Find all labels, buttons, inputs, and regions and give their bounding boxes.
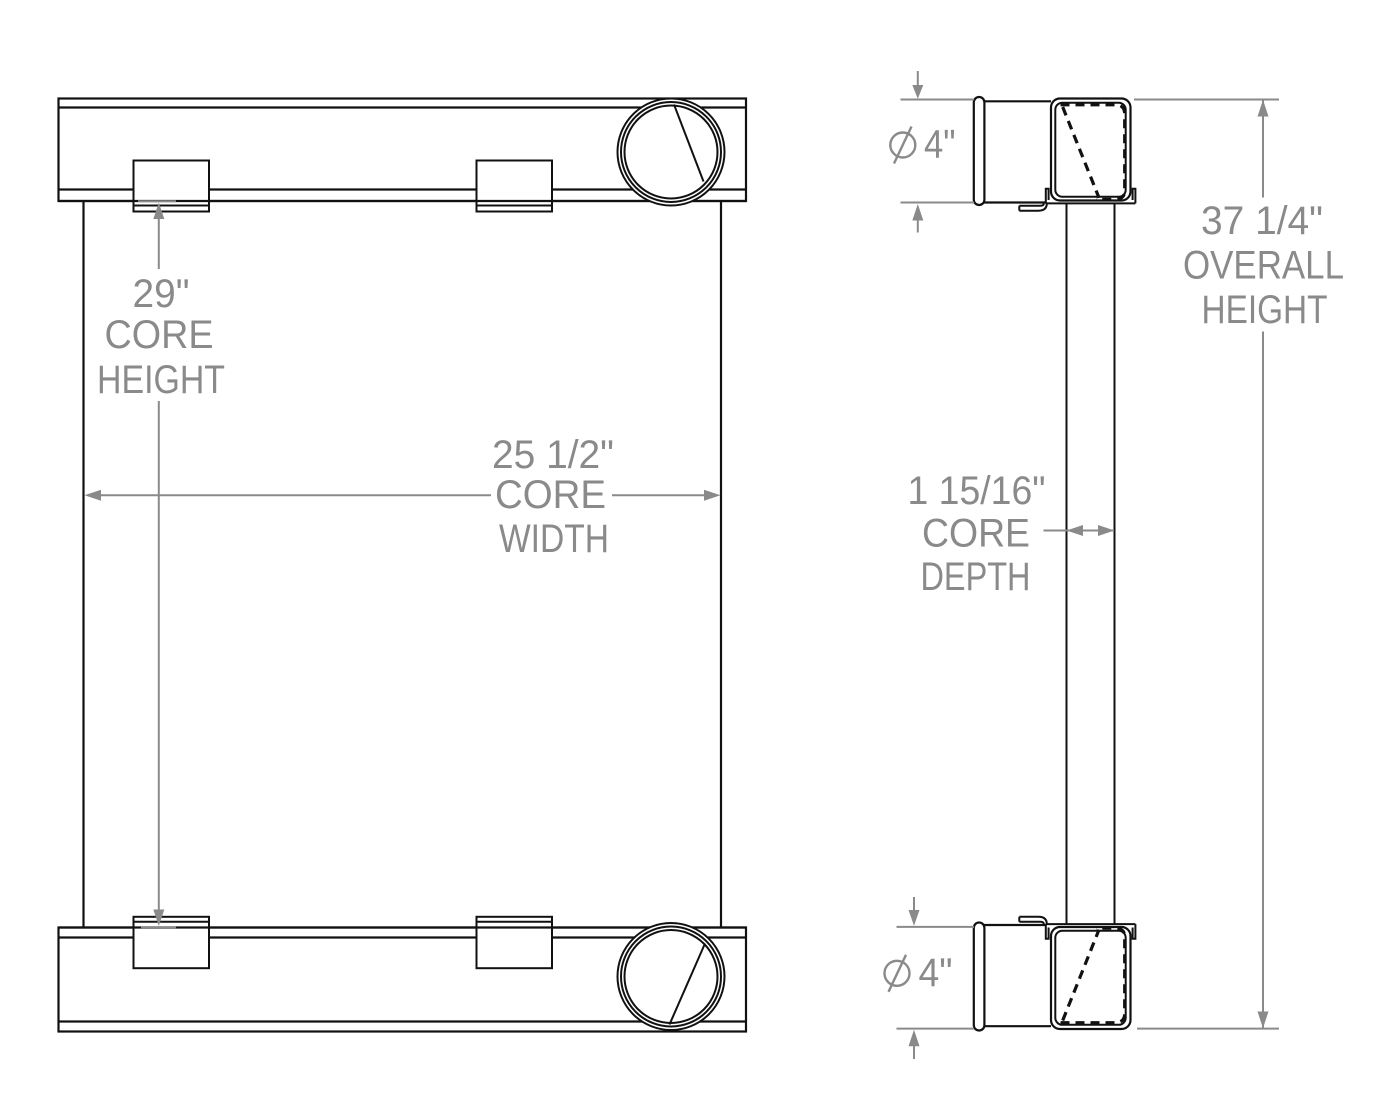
svg-text:WIDTH: WIDTH [499,517,609,561]
svg-text:HEIGHT: HEIGHT [1202,288,1328,332]
svg-text:HEIGHT: HEIGHT [97,358,225,402]
svg-text:1 15/16": 1 15/16" [908,469,1046,513]
svg-text:CORE: CORE [105,313,214,357]
svg-text:4": 4" [924,123,956,167]
svg-text:25 1/2": 25 1/2" [492,433,614,477]
svg-text:DEPTH: DEPTH [921,555,1031,599]
svg-text:OVERALL: OVERALL [1183,244,1344,288]
svg-text:37 1/4": 37 1/4" [1201,199,1323,243]
svg-text:4": 4" [919,951,953,995]
svg-text:CORE: CORE [922,512,1030,556]
svg-text:29": 29" [133,272,190,316]
svg-text:CORE: CORE [495,473,606,517]
